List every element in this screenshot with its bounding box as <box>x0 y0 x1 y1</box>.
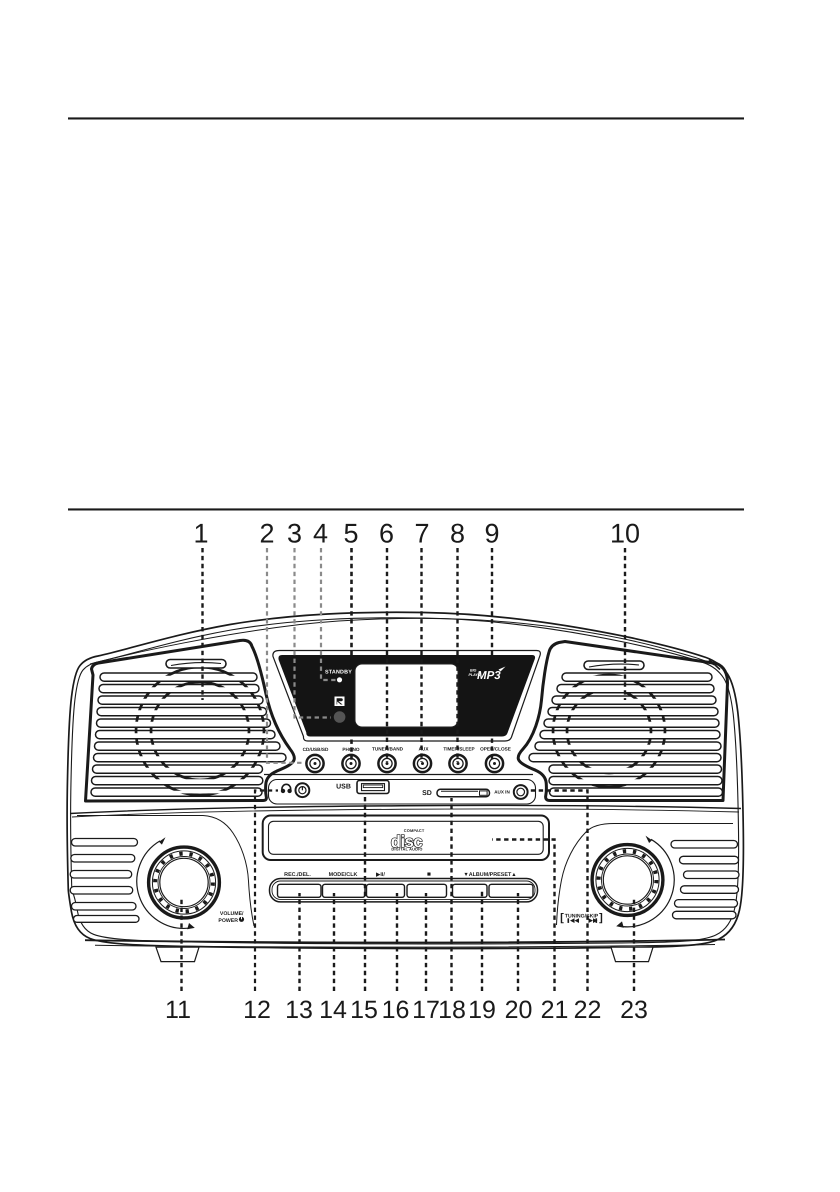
svg-text:22: 22 <box>574 996 602 1024</box>
svg-text:OPEN/CLOSE: OPEN/CLOSE <box>480 747 511 752</box>
svg-text:POWER: POWER <box>218 918 238 924</box>
svg-text:]: ] <box>599 912 603 924</box>
svg-text:9: 9 <box>484 519 499 549</box>
svg-text:5: 5 <box>343 519 358 549</box>
svg-text:1: 1 <box>193 519 208 549</box>
svg-text:▼ALBUM/PRESET▲: ▼ALBUM/PRESET▲ <box>463 872 516 878</box>
svg-text:3: 3 <box>287 519 302 549</box>
svg-text:CD/USB/SD: CD/USB/SD <box>303 747 329 752</box>
svg-text:12: 12 <box>243 996 271 1024</box>
svg-text:7: 7 <box>414 519 429 549</box>
svg-text:21: 21 <box>541 996 569 1024</box>
svg-text:10: 10 <box>610 519 640 549</box>
svg-text:4: 4 <box>313 519 328 549</box>
svg-text:14: 14 <box>319 996 347 1024</box>
svg-text:8: 8 <box>450 519 465 549</box>
svg-text:▶II/: ▶II/ <box>375 872 385 878</box>
svg-text:6: 6 <box>379 519 394 549</box>
svg-text:13: 13 <box>285 996 313 1024</box>
svg-text:TIMER/SLEEP: TIMER/SLEEP <box>443 747 474 752</box>
svg-text:SD: SD <box>422 790 432 797</box>
svg-text:USB: USB <box>336 784 351 791</box>
svg-text:19: 19 <box>468 996 496 1024</box>
svg-text:AUX IN: AUX IN <box>494 789 510 794</box>
svg-text:[: [ <box>560 912 564 924</box>
svg-text:AUX: AUX <box>419 747 430 752</box>
svg-text:■: ■ <box>427 871 431 878</box>
svg-text:REC./DEL.: REC./DEL. <box>284 872 311 878</box>
svg-text:MODE/CLK: MODE/CLK <box>329 872 358 878</box>
svg-text:11: 11 <box>165 996 191 1024</box>
svg-text:15: 15 <box>350 996 378 1024</box>
svg-text:DIGITAL AUDIO: DIGITAL AUDIO <box>391 847 422 852</box>
svg-text:23: 23 <box>620 996 648 1024</box>
svg-text:20: 20 <box>505 996 533 1024</box>
svg-text:MP3: MP3 <box>477 670 501 682</box>
svg-text:2: 2 <box>259 519 274 549</box>
svg-text:16: 16 <box>382 996 410 1024</box>
svg-text:STANDBY: STANDBY <box>325 670 352 676</box>
svg-text:18: 18 <box>438 996 466 1024</box>
svg-text:VOLUME/: VOLUME/ <box>220 911 244 917</box>
svg-text:17: 17 <box>412 996 440 1024</box>
svg-text:BIG: BIG <box>470 669 477 673</box>
